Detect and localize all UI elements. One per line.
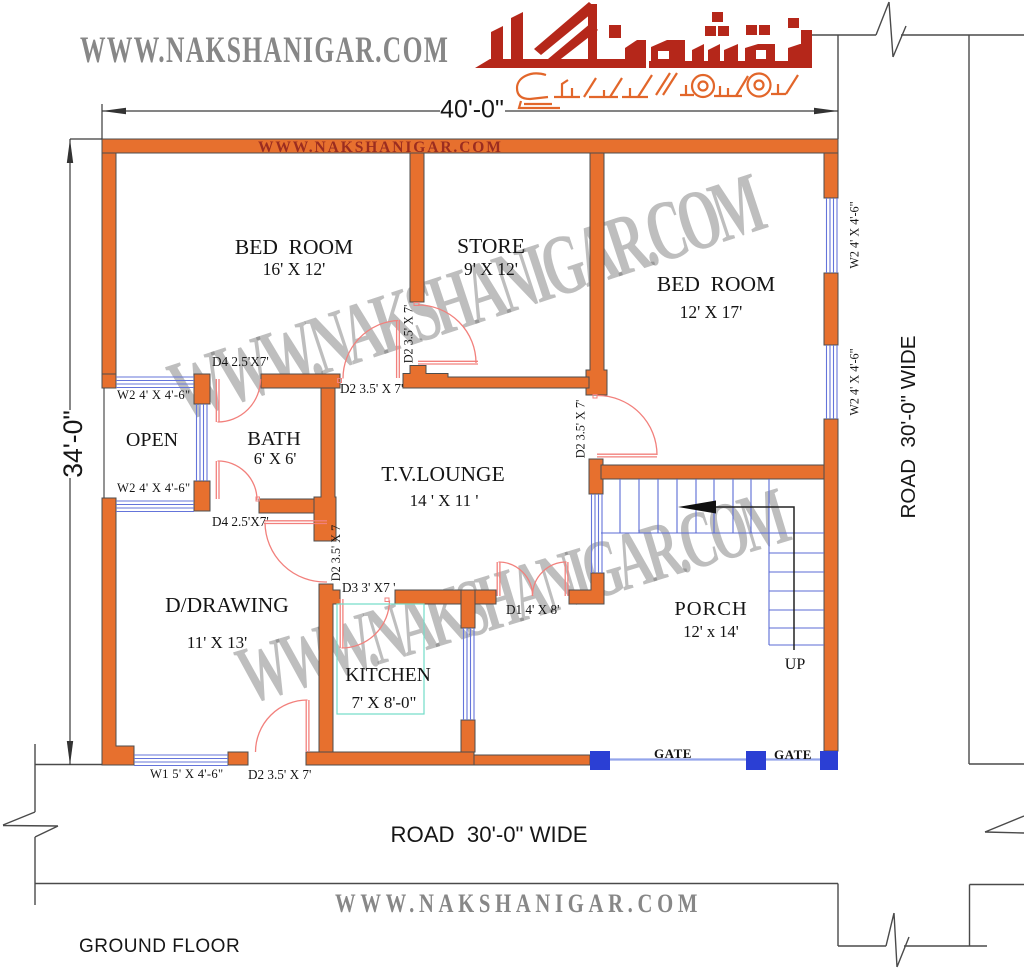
svg-text:6' X 6': 6' X 6' <box>254 449 297 468</box>
svg-text:OPEN: OPEN <box>126 429 178 451</box>
svg-text:W2 4' X 4'-6": W2 4' X 4'-6" <box>117 388 190 402</box>
svg-text:12' x 14': 12' x 14' <box>683 622 738 641</box>
svg-text:34'-0": 34'-0" <box>58 410 88 478</box>
svg-text:40'-0": 40'-0" <box>440 96 504 124</box>
svg-text:STORE: STORE <box>457 234 525 258</box>
svg-text:7' X 8'-0": 7' X 8'-0" <box>351 693 416 712</box>
svg-text:D4 2.5'X7': D4 2.5'X7' <box>212 354 269 369</box>
svg-text:WWW.NAKSHANIGAR.COM: WWW.NAKSHANIGAR.COM <box>80 30 449 71</box>
svg-text:9' X 12': 9' X 12' <box>464 259 518 279</box>
svg-text:D2 3.5' X 7': D2 3.5' X 7' <box>402 305 416 364</box>
svg-text:D4 2.5'X7': D4 2.5'X7' <box>212 514 269 529</box>
svg-text:KITCHEN: KITCHEN <box>345 665 431 686</box>
svg-text:BED ROOM: BED ROOM <box>235 235 353 259</box>
svg-text:W2 4' X 4'-6": W2 4' X 4'-6" <box>117 481 190 495</box>
svg-text:W1 5' X 4'-6": W1 5' X 4'-6" <box>150 767 223 781</box>
svg-text:BATH: BATH <box>247 428 301 450</box>
svg-text:D2 3.5' X 7: D2 3.5' X 7 <box>329 525 343 581</box>
svg-text:D1 4' X 8': D1 4' X 8' <box>506 602 559 617</box>
svg-text:14 ' X 11 ': 14 ' X 11 ' <box>410 491 479 510</box>
svg-text:D/DRAWING: D/DRAWING <box>165 593 289 617</box>
svg-text:D3 3' X7 ': D3 3' X7 ' <box>342 580 395 595</box>
svg-text:ROAD 30'-0" WIDE: ROAD 30'-0" WIDE <box>897 336 920 519</box>
svg-text:D2 3.5' X 7': D2 3.5' X 7' <box>574 400 588 459</box>
svg-text:UP: UP <box>785 656 806 673</box>
svg-text:WWW.NAKSHANIGAR.COM: WWW.NAKSHANIGAR.COM <box>258 139 503 156</box>
svg-text:GROUND FLOOR: GROUND FLOOR <box>79 936 240 957</box>
svg-text:16' X 12': 16' X 12' <box>263 259 326 279</box>
svg-text:PORCH: PORCH <box>674 598 747 620</box>
svg-text:D2 3.5' X 7': D2 3.5' X 7' <box>248 767 311 782</box>
svg-text:ROAD 30'-0" WIDE: ROAD 30'-0" WIDE <box>390 822 587 847</box>
svg-text:W2 4' X 4'-6": W2 4' X 4'-6" <box>848 348 862 415</box>
svg-text:D2 3.5' X 7': D2 3.5' X 7' <box>340 381 403 396</box>
svg-text:W2 4' X 4'-6": W2 4' X 4'-6" <box>848 201 862 268</box>
svg-text:11' X 13': 11' X 13' <box>187 633 247 652</box>
svg-text:WWW.NAKSHANIGAR.COM: WWW.NAKSHANIGAR.COM <box>335 890 702 919</box>
svg-text:GATE: GATE <box>654 746 692 761</box>
svg-text:GATE: GATE <box>774 747 812 762</box>
svg-text:12' X 17': 12' X 17' <box>680 302 743 322</box>
svg-text:T.V.LOUNGE: T.V.LOUNGE <box>381 462 504 486</box>
svg-text:BED ROOM: BED ROOM <box>657 272 775 296</box>
